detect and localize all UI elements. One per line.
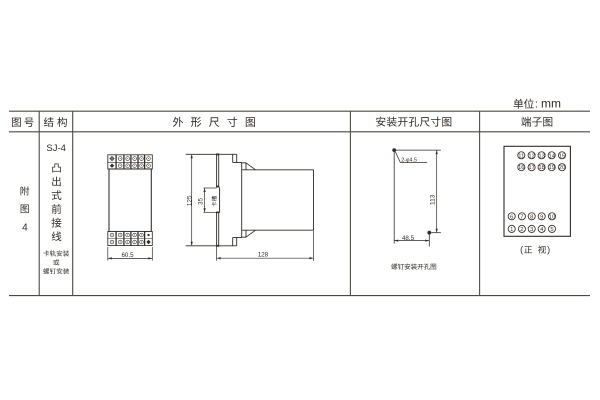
svg-text:48.5: 48.5: [402, 235, 415, 242]
svg-text:19: 19: [548, 165, 554, 171]
svg-text:10: 10: [549, 214, 555, 220]
svg-text:9: 9: [540, 214, 543, 220]
svg-text:128: 128: [258, 252, 269, 259]
svg-text:13: 13: [538, 153, 544, 159]
svg-text:11: 11: [518, 153, 524, 159]
svg-text:60.5: 60.5: [121, 252, 134, 259]
svg-text:35: 35: [198, 197, 205, 204]
svg-text:15: 15: [559, 153, 565, 159]
svg-text:): ): [547, 245, 550, 255]
svg-text:2-φ4.5: 2-φ4.5: [401, 158, 417, 164]
svg-text:2: 2: [520, 227, 523, 233]
svg-text:113: 113: [430, 194, 437, 205]
svg-text:7: 7: [520, 214, 523, 220]
svg-text:14: 14: [548, 153, 555, 159]
svg-text::: :: [535, 99, 538, 111]
svg-text:125: 125: [186, 195, 193, 206]
svg-text:(: (: [520, 245, 523, 255]
svg-text:16: 16: [518, 165, 524, 171]
svg-text:20: 20: [559, 165, 565, 171]
svg-text:mm: mm: [541, 97, 561, 111]
svg-text:SJ-4: SJ-4: [46, 143, 66, 153]
svg-text:8: 8: [530, 214, 533, 220]
svg-text:12: 12: [528, 153, 534, 159]
svg-text:1: 1: [510, 227, 513, 233]
svg-text:6: 6: [510, 214, 513, 220]
svg-text:18: 18: [538, 165, 544, 171]
svg-text:3: 3: [530, 227, 533, 233]
svg-text:4: 4: [22, 223, 28, 234]
svg-text:17: 17: [528, 165, 534, 171]
svg-text:5: 5: [550, 227, 553, 233]
